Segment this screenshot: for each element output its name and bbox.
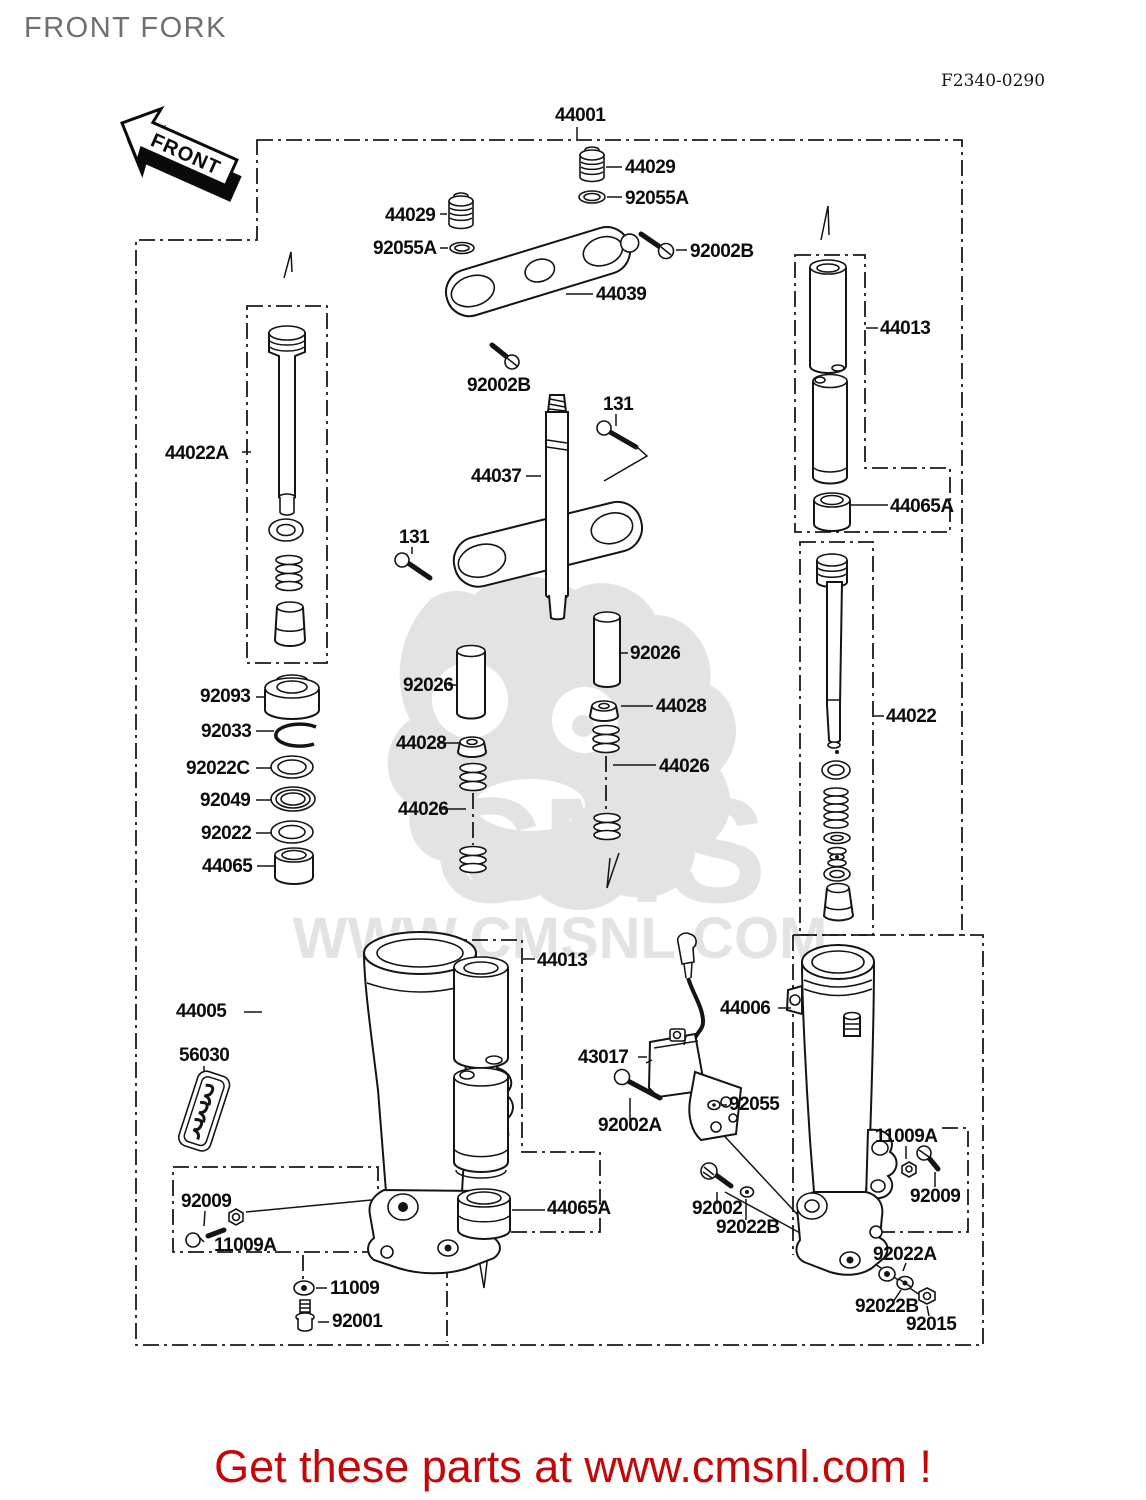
upper-triple-clamp-44039 bbox=[440, 147, 673, 369]
part-label-44006: 44006 bbox=[720, 998, 770, 1019]
taper-bushing-right bbox=[824, 884, 853, 921]
antidive-valve-43017 bbox=[615, 933, 754, 1197]
part-label-44026: 44026 bbox=[659, 756, 709, 777]
rod-foot bbox=[828, 742, 840, 748]
o-ring-92055-center bbox=[712, 1103, 716, 1107]
washer-11009 bbox=[294, 1281, 314, 1295]
part-label-44022A: 44022A bbox=[165, 443, 229, 464]
part-label-44029: 44029 bbox=[625, 157, 675, 178]
cmsnl-banner-link[interactable]: Get these parts at www.cmsnl.com ! bbox=[0, 1441, 1146, 1493]
oil-seal-92049 bbox=[271, 787, 315, 811]
mid-boss bbox=[844, 1013, 860, 1037]
small-spring bbox=[824, 788, 848, 828]
part-label-92055: 92055 bbox=[729, 1094, 780, 1115]
part-label-44039: 44039 bbox=[596, 284, 646, 305]
bolt-92009-right bbox=[917, 1146, 938, 1169]
part-label-44028: 44028 bbox=[396, 733, 446, 754]
damper-rod-44022A bbox=[269, 326, 305, 646]
part-label-11009A: 11009A bbox=[214, 1235, 277, 1256]
clamp-ear bbox=[870, 1226, 882, 1238]
decal-56030 bbox=[176, 1069, 231, 1153]
valve-top-hole bbox=[674, 1032, 681, 1039]
part-label-44065A: 44065A bbox=[890, 496, 954, 517]
spacer-92026-left bbox=[457, 646, 485, 719]
leg-mouth-inner bbox=[377, 939, 463, 967]
part-label-131: 131 bbox=[603, 394, 634, 415]
part-label-92093: 92093 bbox=[200, 686, 250, 707]
tube-upper bbox=[454, 957, 508, 1068]
washer-92022A-part bbox=[879, 1267, 895, 1281]
leg-mouth-inner bbox=[812, 951, 864, 973]
rod-seal-inner bbox=[277, 525, 295, 536]
leg-body bbox=[802, 962, 874, 1192]
part-label-44065A: 44065A bbox=[547, 1198, 611, 1219]
part-label-56030: 56030 bbox=[179, 1045, 229, 1066]
part-label-44013: 44013 bbox=[537, 950, 587, 971]
part-label-92002: 92002 bbox=[692, 1198, 742, 1219]
washer-92022B bbox=[741, 1187, 754, 1197]
part-label-92015: 92015 bbox=[906, 1314, 957, 1335]
part-label-44037: 44037 bbox=[471, 466, 521, 487]
washer-92022 bbox=[271, 821, 313, 843]
part-label-11009A: 11009A bbox=[875, 1126, 938, 1147]
part-label-92002B: 92002B bbox=[690, 241, 754, 262]
fork-cap-44029-right bbox=[580, 147, 604, 182]
part-label-92022C: 92022C bbox=[186, 758, 250, 779]
part-label-44029: 44029 bbox=[385, 205, 435, 226]
rebound-spring bbox=[276, 556, 302, 591]
part-label-92009: 92009 bbox=[181, 1191, 231, 1212]
damper-rod-44022 bbox=[817, 554, 853, 920]
bolt-92002B-lower bbox=[492, 345, 519, 369]
guide-bushing-44065 bbox=[275, 848, 313, 884]
dust-seal-92093 bbox=[265, 675, 319, 719]
bolt-92002 bbox=[701, 1163, 731, 1186]
part-label-44022: 44022 bbox=[886, 706, 936, 727]
o-ring-92055A-left-inner bbox=[455, 245, 469, 251]
bracket-hole bbox=[871, 1180, 885, 1192]
part-label-92026: 92026 bbox=[630, 643, 680, 664]
wire-connector bbox=[678, 933, 696, 964]
o-ring-92055A-right-inner bbox=[584, 194, 600, 201]
plate-hole bbox=[729, 1114, 737, 1122]
axle-lug-inner bbox=[805, 1200, 819, 1212]
taper-bushing bbox=[275, 602, 305, 646]
spring-seat-44028-left bbox=[458, 737, 486, 757]
bushing-44065A-bottom bbox=[458, 1189, 510, 1239]
part-label-43017: 43017 bbox=[578, 1047, 628, 1068]
part-label-131: 131 bbox=[399, 527, 430, 548]
part-label-92002A: 92002A bbox=[598, 1115, 662, 1136]
parts-diagram-page: FRONT FORK F2340-0290 FRONT CMS WWW.CMSN… bbox=[0, 0, 1146, 1500]
bolt-92001 bbox=[296, 1300, 314, 1331]
part-label-92022B: 92022B bbox=[716, 1217, 780, 1238]
part-label-44026: 44026 bbox=[398, 799, 448, 820]
exploded-diagram: CMS WWW.CMSNL.COM bbox=[0, 0, 1146, 1500]
clamp-hole-center bbox=[445, 1245, 452, 1252]
part-label-92049: 92049 bbox=[200, 790, 250, 811]
axle-lug-hole bbox=[398, 1202, 408, 1212]
spacer-92026-right bbox=[594, 612, 620, 687]
wire bbox=[688, 978, 703, 1041]
valve-washers bbox=[824, 833, 850, 882]
washer-92022B-part bbox=[897, 1277, 913, 1290]
part-label-92001: 92001 bbox=[332, 1311, 383, 1332]
rod-shaft bbox=[827, 582, 842, 743]
left-seal-stack bbox=[265, 675, 319, 884]
right-fork-leg-44006 bbox=[787, 945, 897, 1275]
part-label-44065: 44065 bbox=[202, 856, 253, 877]
plate-hole bbox=[711, 1122, 721, 1132]
bolt-131-pointer bbox=[604, 447, 647, 481]
spacer-tubes-44013-top bbox=[810, 260, 850, 531]
washer-92022C bbox=[271, 756, 313, 778]
spacer-tubes-44013-bottom bbox=[454, 957, 510, 1239]
piston-ring bbox=[822, 761, 850, 779]
part-label-92055A: 92055A bbox=[373, 238, 437, 259]
arrow-above-right-box bbox=[821, 206, 829, 240]
stem-lower-end bbox=[549, 595, 566, 619]
spring-seat-44028-right bbox=[590, 701, 618, 721]
bushing-44065A-top bbox=[814, 493, 850, 531]
part-label-44013: 44013 bbox=[880, 318, 930, 339]
part-label-92055A: 92055A bbox=[625, 188, 689, 209]
nut-11009A-right bbox=[902, 1162, 916, 1177]
part-label-44001: 44001 bbox=[555, 105, 606, 126]
tube-lower bbox=[454, 1068, 508, 1178]
part-label-44005: 44005 bbox=[176, 1001, 227, 1022]
part-label-92022A: 92022A bbox=[873, 1244, 937, 1265]
part-label-11009: 11009 bbox=[330, 1278, 379, 1299]
part-label-92022: 92022 bbox=[201, 823, 251, 844]
part-label-92009: 92009 bbox=[910, 1186, 960, 1207]
nut-92015 bbox=[919, 1288, 935, 1304]
bolt-131-left bbox=[395, 553, 430, 578]
cmsnl-watermark: CMS WWW.CMSNL.COM bbox=[293, 576, 828, 971]
tube-upper bbox=[810, 260, 846, 373]
bolt-92002B-right bbox=[641, 234, 674, 259]
retaining-ring-92033 bbox=[276, 724, 316, 746]
part-label-92033: 92033 bbox=[201, 721, 251, 742]
clamp-ear bbox=[381, 1246, 393, 1258]
part-label-44028: 44028 bbox=[656, 696, 706, 717]
part-label-92026: 92026 bbox=[403, 675, 453, 696]
clamp-hole-center bbox=[847, 1257, 854, 1264]
fork-cap-44029-left bbox=[449, 193, 473, 229]
part-label-92002B: 92002B bbox=[467, 375, 531, 396]
tube-lower bbox=[813, 375, 847, 484]
lug-bolt bbox=[790, 995, 800, 1005]
arrow-above-left-box bbox=[284, 252, 292, 278]
rod-hole bbox=[835, 750, 839, 754]
